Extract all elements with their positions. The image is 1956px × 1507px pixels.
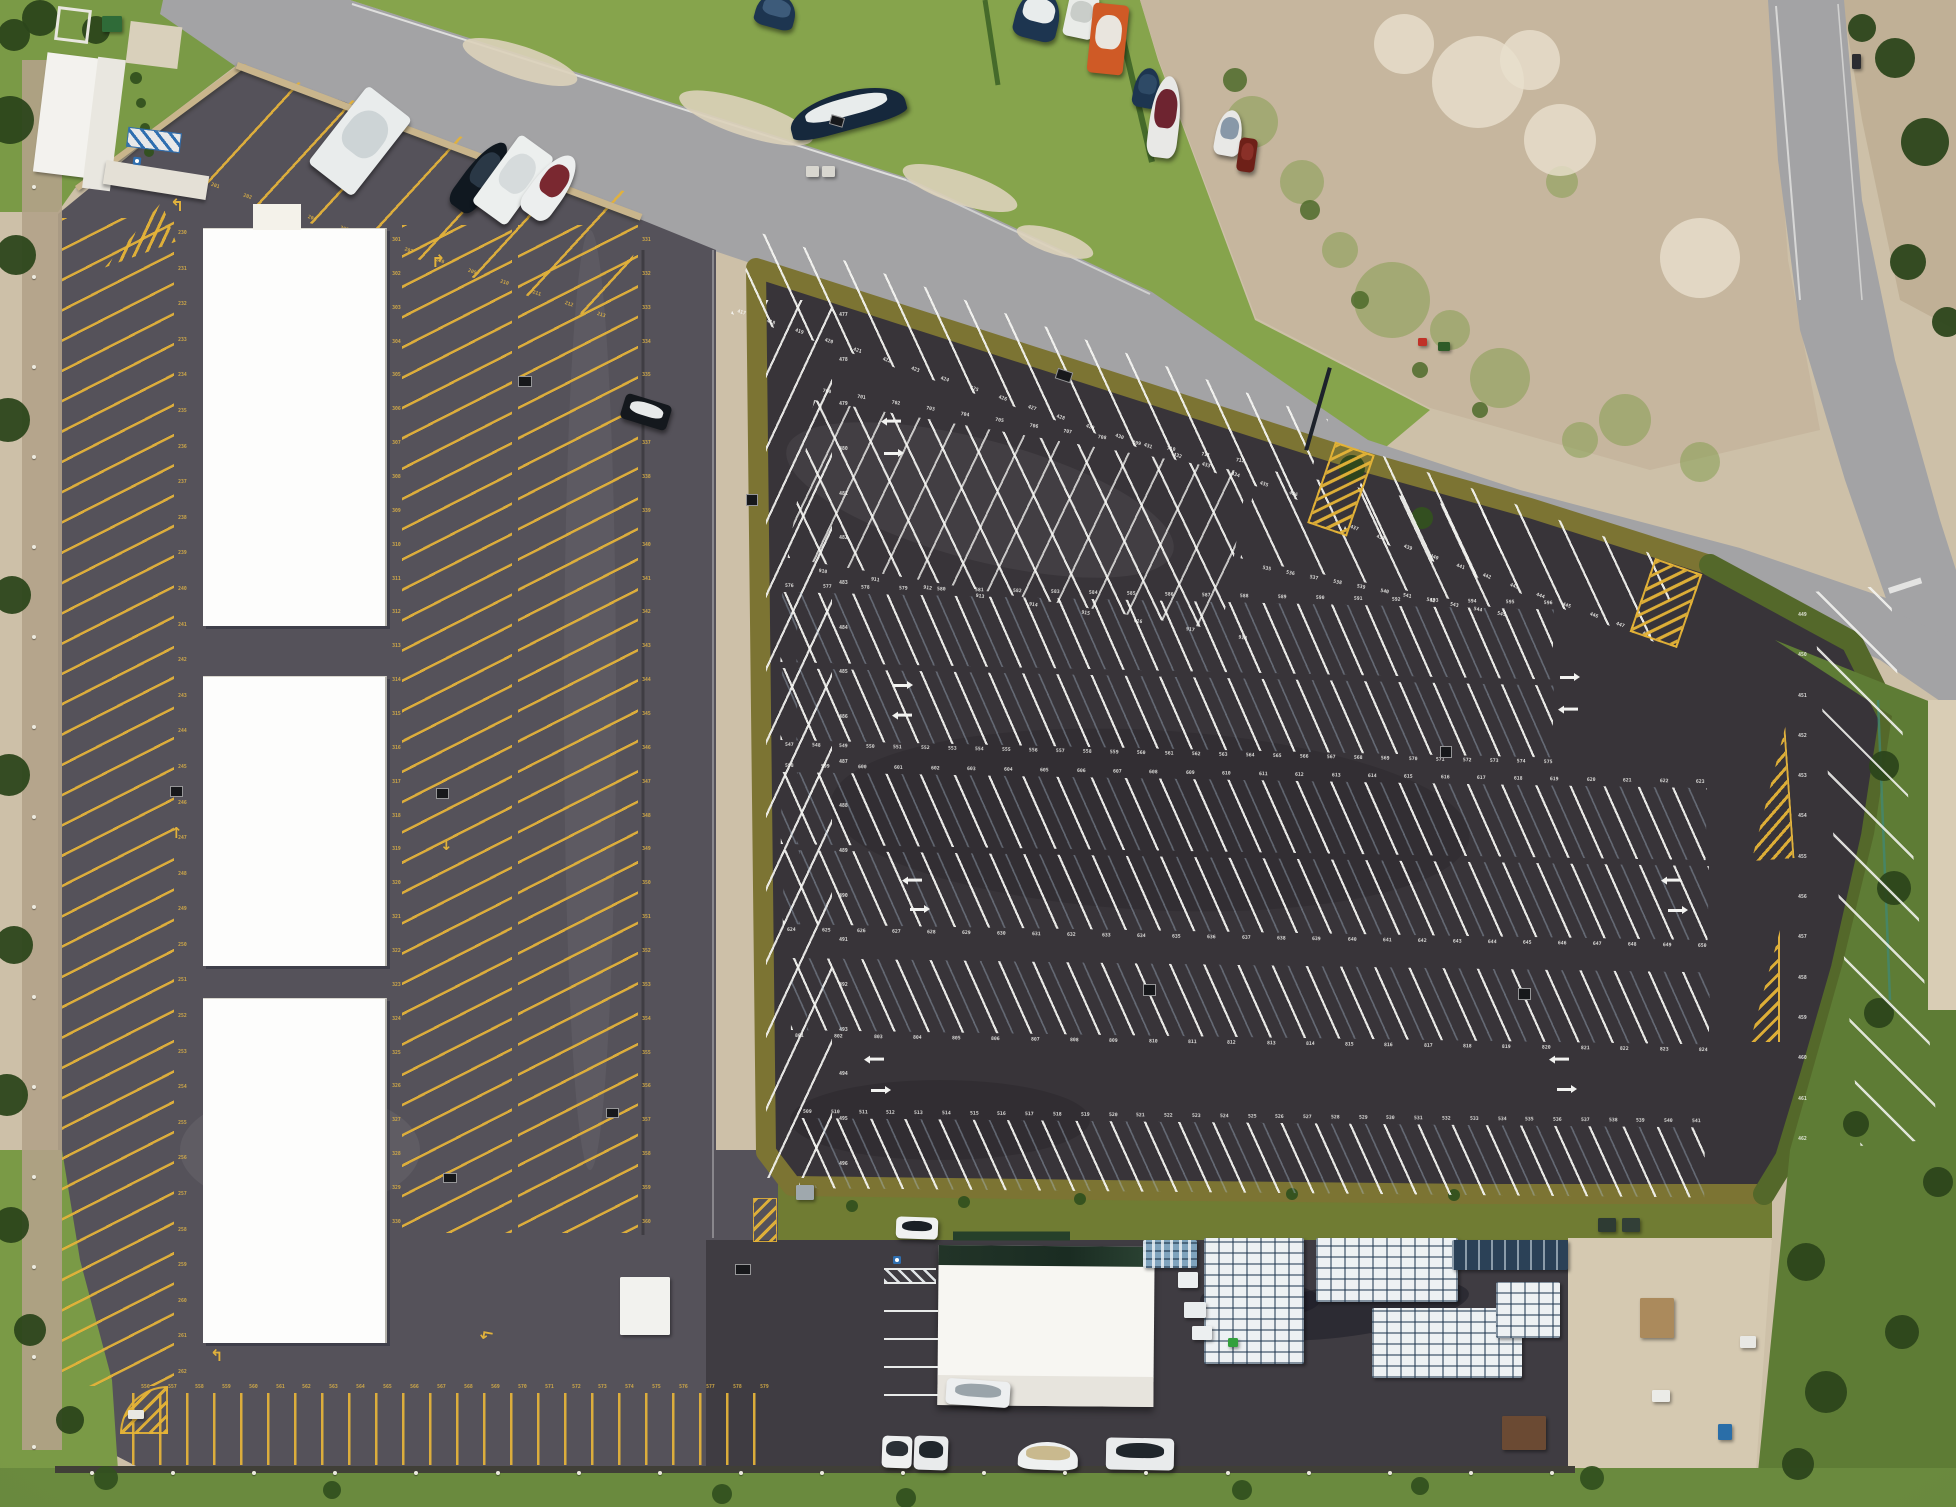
fence-post xyxy=(820,1471,824,1475)
vehicle-top xyxy=(902,1220,933,1232)
road-sign xyxy=(1852,54,1861,69)
dumpster xyxy=(1184,1302,1206,1318)
lane-arrow-white xyxy=(886,420,901,423)
objects-layer: ↰↱↑↓↰↰ xyxy=(0,0,1956,1507)
equipment-green xyxy=(1228,1338,1238,1347)
vehicle-boat xyxy=(1011,0,1066,45)
fence-post xyxy=(414,1471,418,1475)
fence-post xyxy=(333,1471,337,1475)
pallet xyxy=(1740,1336,1756,1348)
fence-post xyxy=(32,185,36,189)
vehicle-top xyxy=(336,102,397,164)
vehicle-top xyxy=(1021,0,1058,26)
vehicle-top xyxy=(1240,143,1255,161)
shed-gray xyxy=(796,1185,814,1200)
lane-arrow-white xyxy=(869,1058,884,1061)
vehicle-top xyxy=(761,0,793,19)
vehicle-top xyxy=(886,1441,908,1457)
vehicle-top xyxy=(1137,73,1159,95)
pallet-stacks-navy xyxy=(1452,1240,1568,1270)
pallet-stacks-w xyxy=(1316,1238,1458,1302)
lane-arrow-white xyxy=(1557,1088,1572,1091)
bin-dark xyxy=(1622,1218,1640,1232)
fence-post xyxy=(32,995,36,999)
lane-arrow-yellow: ↱ xyxy=(431,252,445,272)
vehicle-top xyxy=(1219,116,1241,141)
lane-arrow-white xyxy=(1554,1058,1569,1061)
fence-post xyxy=(1469,1471,1473,1475)
fence-post xyxy=(496,1471,500,1475)
pavement-drain xyxy=(443,1173,457,1183)
fence-post xyxy=(32,635,36,639)
lane-arrow-white xyxy=(893,684,908,687)
fence-post xyxy=(32,1265,36,1269)
lane-arrow-yellow: ↰ xyxy=(476,1327,497,1344)
vehicle-car-white xyxy=(913,1435,948,1470)
vehicle-truck-trailer-dark xyxy=(1106,1437,1175,1470)
vehicle-car-white xyxy=(881,1435,912,1468)
lane-arrow-white xyxy=(910,908,925,911)
shed-white xyxy=(620,1277,670,1335)
vehicle-truck-trailer xyxy=(945,1378,1011,1408)
equipment xyxy=(1438,342,1450,351)
vehicle-car-white xyxy=(896,1216,939,1239)
fence-post xyxy=(1550,1471,1554,1475)
fence-post xyxy=(32,815,36,819)
fence-post xyxy=(1063,1471,1067,1475)
fence-post xyxy=(32,365,36,369)
lane-arrow-white xyxy=(884,452,899,455)
vehicle-rv-bus xyxy=(308,85,412,197)
lane-arrow-yellow: ↰ xyxy=(170,196,184,216)
fence-post xyxy=(1144,1471,1148,1475)
fence-post xyxy=(252,1471,256,1475)
utility-box xyxy=(822,166,835,177)
pavement-drain xyxy=(1518,988,1531,1000)
fence-post xyxy=(32,455,36,459)
pavement-drain xyxy=(518,376,532,387)
lane-arrow-white xyxy=(1666,879,1681,882)
fence-post xyxy=(1388,1471,1392,1475)
lane-arrow-white xyxy=(897,714,912,717)
pavement-drain xyxy=(735,1264,751,1275)
fence-post xyxy=(32,1085,36,1089)
vehicle-top xyxy=(955,1383,1002,1399)
fence-post xyxy=(1226,1471,1230,1475)
fence-post xyxy=(32,545,36,549)
vehicle-top xyxy=(803,88,890,128)
shed-brown xyxy=(1502,1416,1546,1450)
dumpster xyxy=(1192,1326,1212,1340)
vehicle-top xyxy=(1115,1443,1164,1459)
fence-post xyxy=(1307,1471,1311,1475)
lane-arrow-white xyxy=(907,879,922,882)
vehicle-top xyxy=(1094,14,1123,50)
crates xyxy=(1640,1298,1674,1338)
fence-post xyxy=(982,1471,986,1475)
fence-post xyxy=(739,1471,743,1475)
dumpster xyxy=(1178,1272,1198,1288)
lane-arrow-yellow: ↓ xyxy=(440,836,453,854)
equipment-red xyxy=(1418,338,1427,346)
fence-post xyxy=(658,1471,662,1475)
bin-blue xyxy=(1718,1424,1732,1440)
pavement-drain xyxy=(170,786,183,797)
lane-arrow-white xyxy=(871,1089,886,1092)
vehicle-top xyxy=(919,1441,944,1458)
vehicle-boat xyxy=(752,0,799,33)
fallen-sign xyxy=(128,1410,144,1419)
fence-post xyxy=(901,1471,905,1475)
fence-post xyxy=(32,905,36,909)
lane-arrow-yellow: ↑ xyxy=(170,824,183,842)
lane-arrow-white xyxy=(1563,708,1578,711)
bin-dark xyxy=(1598,1218,1616,1232)
vehicle-truck-boat xyxy=(1018,1441,1079,1471)
lane-arrow-yellow: ↰ xyxy=(210,1346,223,1365)
vehicle-top xyxy=(1026,1446,1070,1461)
utility-box xyxy=(806,166,819,177)
fence-post xyxy=(32,1175,36,1179)
lane-arrow-white xyxy=(1560,676,1575,679)
vehicle-truck-orange xyxy=(1086,2,1129,75)
pallet-stacks-w xyxy=(1204,1238,1304,1364)
pallet-stacks-w xyxy=(1496,1282,1560,1338)
pavement-drain xyxy=(606,1108,619,1118)
fence-post xyxy=(577,1471,581,1475)
vehicle-boat xyxy=(785,77,909,144)
vehicle-top xyxy=(628,398,665,420)
pallet-stacks-blue xyxy=(1143,1240,1197,1268)
fence-post xyxy=(32,275,36,279)
fence-post xyxy=(32,1355,36,1359)
fence-post xyxy=(90,1471,94,1475)
pavement-drain xyxy=(1055,368,1074,383)
fence-post xyxy=(32,1445,36,1449)
pavement-drain xyxy=(746,494,758,506)
pavement-drain xyxy=(436,788,449,799)
vehicle-car-red xyxy=(1236,137,1259,173)
vehicle-top xyxy=(1153,88,1179,130)
fence-post xyxy=(171,1471,175,1475)
pavement-drain xyxy=(1143,984,1156,996)
shed-green xyxy=(102,16,122,32)
lane-arrow-white xyxy=(1668,909,1683,912)
aerial-photo-stage: 2302312322332342352362372382392402412422… xyxy=(0,0,1956,1507)
vehicle-car-black xyxy=(619,393,673,432)
pavement-drain xyxy=(1440,746,1452,758)
fence-post xyxy=(32,725,36,729)
pallet xyxy=(1652,1390,1670,1402)
